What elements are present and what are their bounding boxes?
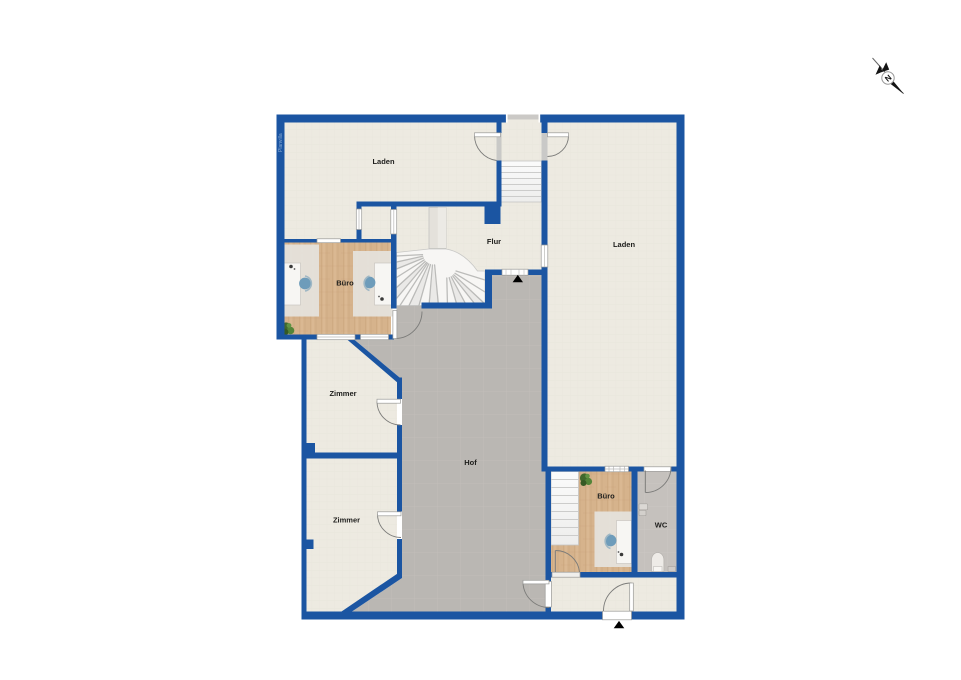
svg-text:Planvilla: Planvilla — [278, 133, 284, 152]
svg-text:Laden: Laden — [372, 157, 395, 166]
svg-text:Laden: Laden — [613, 240, 636, 249]
svg-text:Büro: Büro — [336, 279, 354, 288]
svg-text:WC: WC — [655, 521, 668, 530]
svg-text:Hof: Hof — [464, 458, 477, 467]
svg-text:Zimmer: Zimmer — [333, 516, 360, 525]
svg-text:Büro: Büro — [597, 492, 615, 501]
svg-text:Flur: Flur — [487, 237, 501, 246]
svg-text:Zimmer: Zimmer — [329, 389, 356, 398]
